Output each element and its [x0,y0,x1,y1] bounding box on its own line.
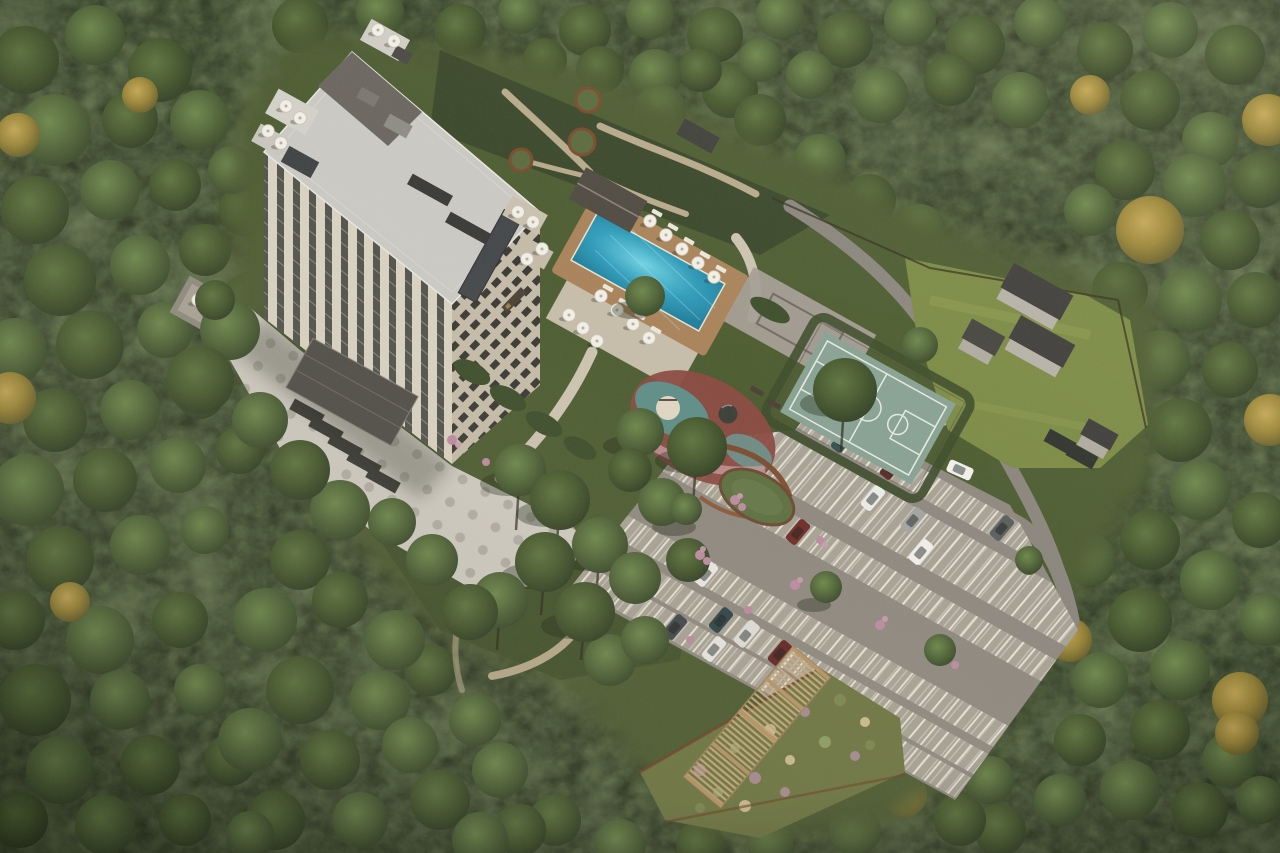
render-canvas [0,0,1280,853]
grain-overlay [0,0,1280,853]
aerial-site-rendering [0,0,1280,853]
